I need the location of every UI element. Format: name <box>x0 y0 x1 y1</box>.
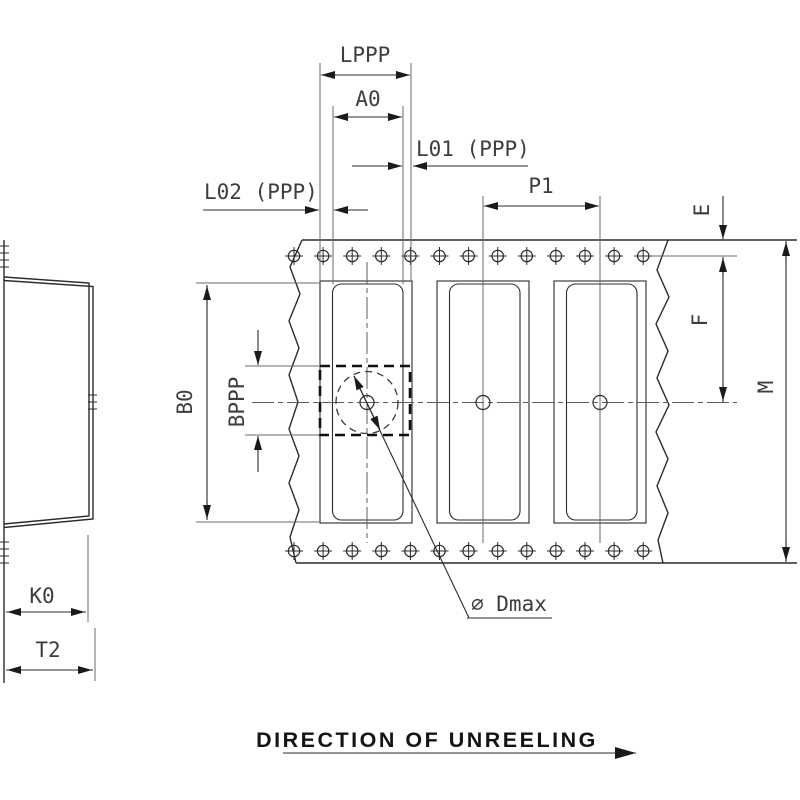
dim-b0: B0 <box>173 285 207 520</box>
dashed-component-zone <box>320 366 410 435</box>
dim-p1: P1 <box>484 174 599 206</box>
carrier-tape-drawing: K0 T2 <box>0 0 800 800</box>
dmax-leader: ⌀ Dmax <box>354 376 552 618</box>
dim-l02: L02 (PPP) <box>203 180 368 210</box>
dim-label-f: F <box>688 314 712 327</box>
dim-bppp: BPPP <box>225 330 258 472</box>
torn-edge-left <box>289 240 302 563</box>
dimensions: LPPP A0 L01 (PPP) L02 (PPP) P1 <box>173 43 786 562</box>
dim-label-b0: B0 <box>173 389 197 414</box>
dim-l01: L01 (PPP) <box>352 137 530 166</box>
dim-label-a0: A0 <box>355 87 380 111</box>
dim-a0: A0 <box>334 87 402 117</box>
side-view-tape-section: K0 T2 <box>0 240 97 683</box>
dim-t2: T2 <box>6 638 93 670</box>
dim-m: M <box>754 241 786 562</box>
torn-edge-right <box>656 240 669 563</box>
dim-e: E <box>690 196 723 239</box>
technical-drawing-page: K0 T2 <box>0 0 800 800</box>
dim-label-l02: L02 (PPP) <box>204 180 318 204</box>
dim-lppp: LPPP <box>321 43 410 75</box>
dim-label-lppp: LPPP <box>340 43 391 67</box>
dim-label-bppp: BPPP <box>225 377 249 428</box>
dim-label-e: E <box>690 204 714 217</box>
unreeling-caption: DIRECTION OF UNREELING <box>256 728 636 753</box>
section-hatch-ticks <box>0 246 97 563</box>
dim-label-dmax: ⌀ Dmax <box>471 592 547 616</box>
caption-text: DIRECTION OF UNREELING <box>256 728 598 752</box>
dim-label-p1: P1 <box>528 174 553 198</box>
dim-label-m: M <box>754 381 778 394</box>
dim-f: F <box>688 257 723 402</box>
dim-label-l01: L01 (PPP) <box>416 137 530 161</box>
sprocket-holes <box>285 247 652 560</box>
dim-k0: K0 <box>6 584 86 612</box>
dim-label-t2: T2 <box>35 638 60 662</box>
front-view-tape: ⌀ Dmax <box>252 196 797 618</box>
dim-label-k0: K0 <box>29 584 54 608</box>
